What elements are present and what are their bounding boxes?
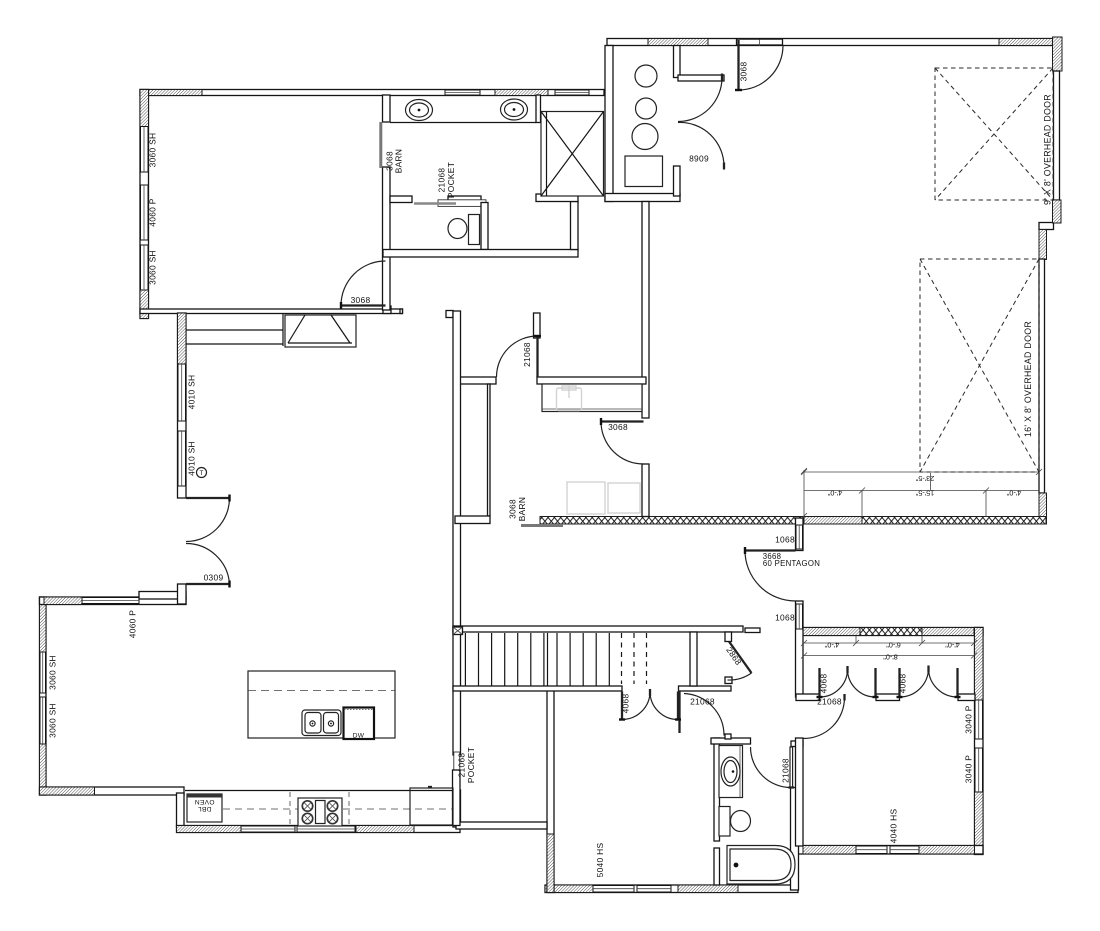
svg-text:21068: 21068 bbox=[690, 697, 715, 707]
svg-text:OVEN: OVEN bbox=[195, 798, 215, 805]
svg-text:4'-0": 4'-0" bbox=[827, 489, 842, 498]
svg-text:4068: 4068 bbox=[898, 674, 908, 694]
svg-text:8909: 8909 bbox=[689, 154, 709, 164]
svg-text:4010 SH: 4010 SH bbox=[187, 441, 197, 476]
svg-text:3068: 3068 bbox=[739, 62, 749, 82]
svg-text:4060 P: 4060 P bbox=[148, 198, 158, 226]
svg-text:4'-0": 4'-0" bbox=[1006, 489, 1021, 498]
svg-text:3068: 3068 bbox=[508, 499, 518, 519]
svg-text:3068: 3068 bbox=[608, 422, 628, 432]
svg-text:4068: 4068 bbox=[621, 694, 631, 714]
svg-text:6'-0": 6'-0" bbox=[886, 641, 901, 650]
svg-text:4040 HS: 4040 HS bbox=[889, 809, 899, 844]
svg-text:21068: 21068 bbox=[781, 758, 791, 783]
svg-text:1068: 1068 bbox=[775, 613, 795, 623]
svg-text:8'-0": 8'-0" bbox=[883, 653, 898, 662]
svg-text:15'-5": 15'-5" bbox=[915, 489, 934, 498]
svg-text:3040 P: 3040 P bbox=[964, 755, 974, 783]
svg-text:4068: 4068 bbox=[819, 674, 829, 694]
svg-text:23'-5": 23'-5" bbox=[915, 474, 934, 483]
svg-text:3068: 3068 bbox=[351, 295, 371, 305]
svg-text:21068: 21068 bbox=[817, 697, 842, 707]
svg-text:1068: 1068 bbox=[775, 535, 795, 545]
svg-text:3040 P: 3040 P bbox=[964, 705, 974, 733]
svg-text:DBL: DBL bbox=[198, 805, 212, 812]
svg-text:4010 SH: 4010 SH bbox=[187, 375, 197, 410]
svg-text:4'-0": 4'-0" bbox=[824, 641, 839, 650]
svg-text:POCKET: POCKET bbox=[446, 162, 456, 198]
svg-text:4060 P: 4060 P bbox=[128, 610, 138, 638]
svg-text:3060 SH: 3060 SH bbox=[48, 703, 58, 738]
svg-text:DW: DW bbox=[353, 733, 365, 740]
svg-text:T: T bbox=[200, 470, 204, 477]
svg-text:21068: 21068 bbox=[522, 342, 532, 367]
svg-text:5040 HS: 5040 HS bbox=[595, 843, 605, 878]
svg-text:BARN: BARN bbox=[517, 497, 527, 521]
svg-text:21068: 21068 bbox=[437, 168, 447, 193]
svg-text:BARN: BARN bbox=[394, 149, 404, 173]
svg-text:POCKET: POCKET bbox=[466, 747, 476, 783]
svg-text:3060 SH: 3060 SH bbox=[148, 250, 158, 285]
svg-text:3060 SH: 3060 SH bbox=[48, 655, 58, 690]
svg-text:4'-0": 4'-0" bbox=[945, 641, 960, 650]
svg-text:60 PENTAGON: 60 PENTAGON bbox=[763, 559, 820, 568]
svg-text:16' X 8' OVERHEAD DOOR: 16' X 8' OVERHEAD DOOR bbox=[1023, 321, 1033, 437]
svg-text:0309: 0309 bbox=[204, 573, 224, 583]
svg-text:21068: 21068 bbox=[457, 753, 467, 778]
svg-text:9' X 8' OVERHEAD DOOR: 9' X 8' OVERHEAD DOOR bbox=[1043, 94, 1053, 205]
svg-text:3060 SH: 3060 SH bbox=[148, 133, 158, 168]
